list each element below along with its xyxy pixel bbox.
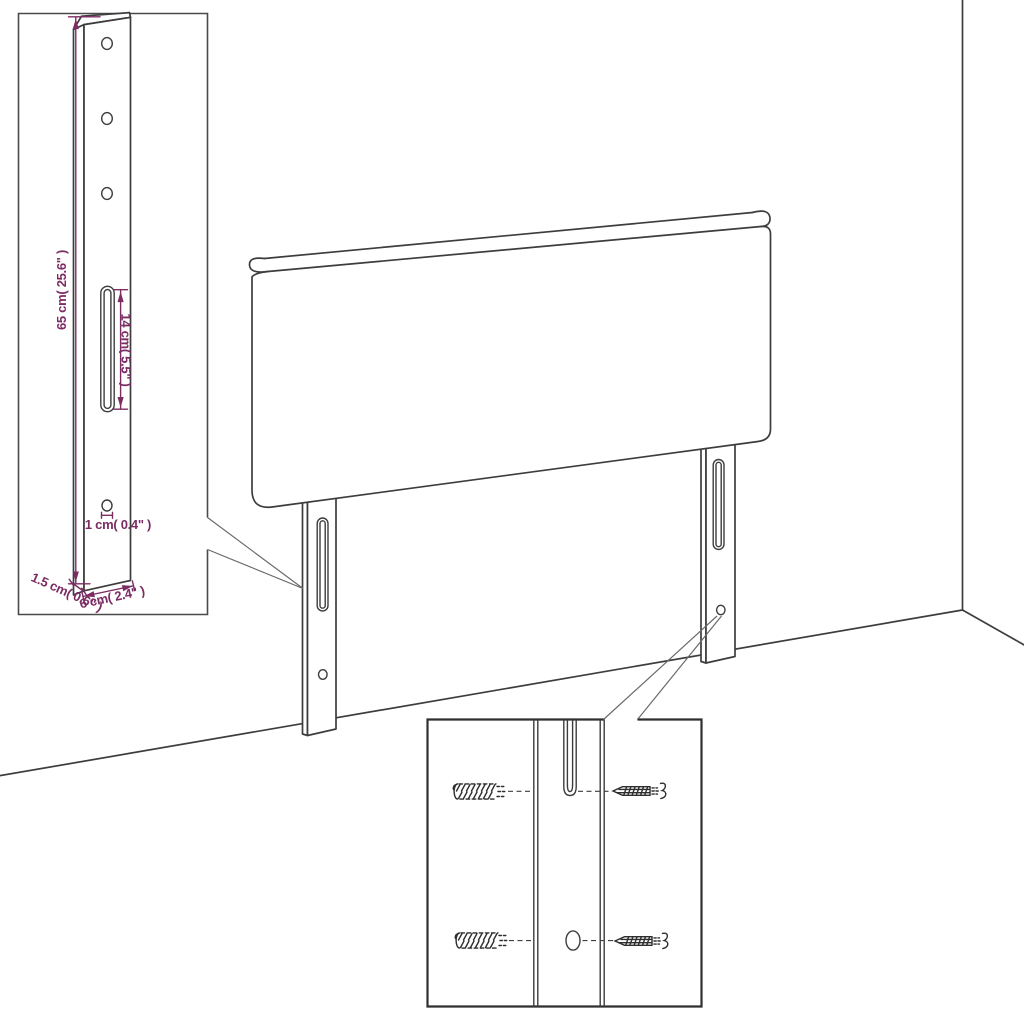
callout-line (638, 616, 722, 720)
headboard-panel (249, 211, 770, 507)
bar-side-face (74, 25, 85, 595)
bar-front-face (84, 17, 131, 590)
headboard-front-face (252, 226, 771, 507)
headboard-left-leg (303, 487, 337, 736)
diagram-canvas: 65 cm( 25.6" ) 14 cm( 5.5" ) 1 cm( 0.4" … (0, 0, 1024, 1024)
dimension-label-slot: 14 cm( 5.5" ) (119, 313, 134, 386)
headboard-rim-right-curl (753, 211, 771, 226)
floor-line-right (963, 610, 1024, 646)
callout-line (604, 616, 718, 720)
hardware-detail-inset (428, 616, 722, 1007)
headboard-right-leg (701, 430, 735, 663)
dimension-label-hole: 1 cm( 0.4" ) (85, 517, 151, 532)
callout-line (208, 550, 304, 589)
headboard-rim-left-curl (249, 258, 268, 272)
diagram-stage: 65 cm( 25.6" ) 14 cm( 5.5" ) 1 cm( 0.4" … (0, 0, 1024, 1024)
leg-detail-drawing (74, 13, 131, 595)
dimension-label-height: 65 cm( 25.6" ) (54, 250, 69, 330)
callout-line (208, 518, 304, 589)
